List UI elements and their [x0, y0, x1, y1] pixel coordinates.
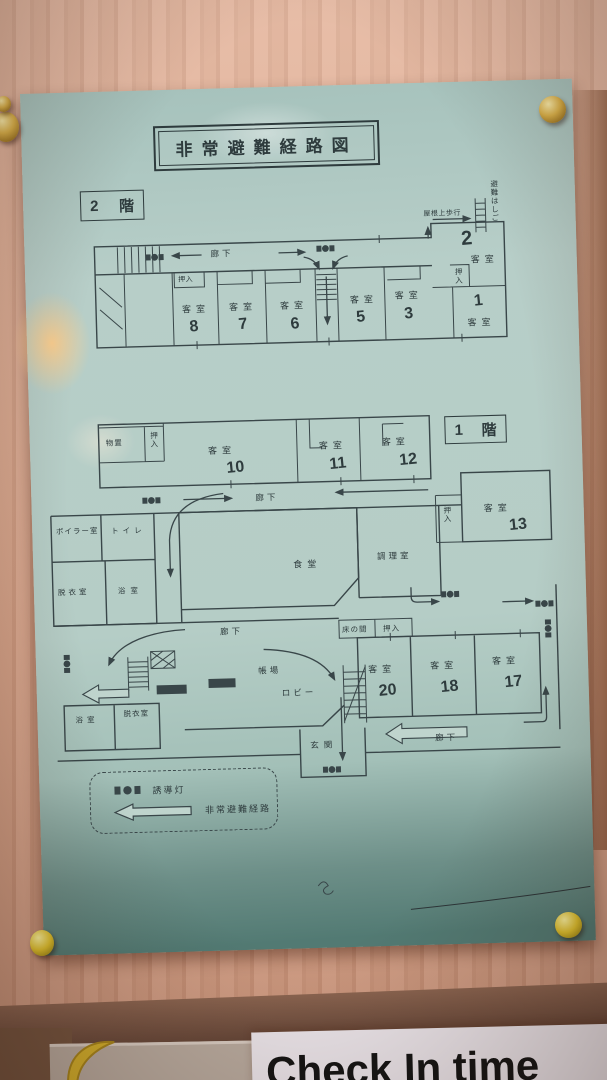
guest-room-label: 客室: [280, 298, 308, 312]
push-pin: [30, 930, 54, 956]
guest-room-label: 客室: [471, 252, 499, 266]
guest-room-label: 客室: [395, 288, 423, 302]
floor-suffix: 階: [481, 418, 497, 439]
room-number: 2: [460, 227, 473, 251]
yellow-leaf-object: [58, 1032, 137, 1080]
room-number: 20: [378, 681, 397, 701]
floor1-label: 1 階: [444, 415, 507, 445]
closet-label: 押入: [442, 506, 454, 530]
guest-room-label: 客室: [492, 653, 520, 667]
escape-ladder-icon: [475, 198, 486, 232]
kitchen-label: 調理室: [377, 549, 412, 562]
room-number: 3: [403, 305, 414, 324]
corridor-label: 廊下: [210, 247, 233, 260]
front-desk-marks: [156, 678, 235, 694]
guidance-light-icon: [323, 766, 341, 773]
guidance-light-icon: [63, 655, 70, 673]
guidance-light-icon: [146, 254, 164, 261]
guidance-light-icon: [441, 591, 459, 598]
handwritten-marks: [318, 874, 591, 912]
closet-label: 押入: [148, 431, 160, 453]
corridor-label: 廊下: [435, 731, 458, 744]
closet-label: 押入: [383, 623, 400, 634]
guidance-light-icon: [316, 245, 334, 252]
legend-route-row: 非常避難経路: [113, 799, 277, 822]
guidance-light-icon: [112, 784, 142, 797]
room-number: 6: [290, 315, 301, 334]
photo-frame: Check In time: [0, 0, 607, 1080]
alcove-label: 床の間: [342, 624, 368, 636]
room-number: 10: [226, 458, 245, 478]
floor2-walls: [94, 222, 507, 352]
corridor-label: 廊下: [255, 491, 278, 504]
guest-room-label: 客室: [368, 662, 396, 676]
legend-route-label: 非常避難経路: [205, 801, 271, 816]
guest-room-label: 客室: [182, 302, 210, 316]
guest-room-label: 客室: [319, 438, 347, 452]
floor2-number: 2: [90, 197, 99, 214]
room-number: 1: [473, 292, 484, 311]
room-number: 7: [238, 315, 249, 334]
floor1-walls: [48, 412, 561, 784]
guest-room-label: 客室: [350, 292, 378, 306]
guest-room-label: 客室: [484, 500, 512, 514]
changing-room-label: 脱衣室: [58, 586, 90, 598]
room-number: 8: [189, 318, 200, 337]
closet-label: 押入: [178, 274, 193, 284]
guest-room-label: 客室: [467, 315, 495, 329]
room-number: 11: [329, 454, 348, 474]
guest-room-label: 客室: [430, 658, 458, 672]
legend-box: 誘導灯 非常避難経路: [89, 767, 279, 834]
boiler-room-label: ボイラー室: [54, 526, 100, 537]
closet-label: 押入: [453, 268, 465, 288]
guidance-light-icon: [142, 497, 160, 504]
map-title-box: 非常避難経路図: [153, 120, 380, 171]
push-pin: [555, 912, 582, 938]
floor2-label: 2 階: [80, 190, 145, 222]
entrance-label: 玄関: [310, 738, 337, 751]
guidance-light-icon: [535, 600, 553, 607]
legend-guidance-light-label: 誘導灯: [152, 782, 185, 796]
bath-label: 浴室: [75, 714, 98, 726]
evacuation-route-arrow-icon: [113, 801, 195, 821]
guest-room-label: 客室: [229, 299, 257, 313]
floor-suffix: 階: [119, 194, 135, 215]
evacuation-map-paper: 非常避難経路図 2 階 1 階 屋根上歩行 避難はしご 廊下 押入 客室 8 客…: [20, 79, 596, 956]
guest-room-label: 客室: [208, 443, 236, 457]
changing-room-label: 脱衣室: [122, 709, 150, 719]
room-number: 13: [508, 515, 527, 535]
corridor-label: 廊下: [220, 625, 243, 638]
storage-label: 物置: [106, 437, 123, 448]
room-number: 12: [399, 450, 418, 470]
room-number: 17: [504, 673, 523, 693]
dining-room-label: 食堂: [293, 557, 321, 571]
checkin-sign-text: Check In time: [266, 1042, 540, 1080]
bath-label: 浴室: [118, 585, 143, 597]
legend-guidance-light-row: 誘導灯: [112, 780, 276, 798]
map-title: 非常避難経路図: [158, 125, 375, 166]
guest-room-label: 客室: [382, 434, 410, 448]
floor1-number: 1: [454, 421, 463, 438]
checkin-sign: Check In time: [251, 1023, 607, 1080]
floor1-evacuation-arrows: [77, 485, 547, 767]
guidance-light-icon: [544, 619, 551, 637]
roof-walk-label: 屋根上歩行: [423, 208, 461, 219]
lobby-label: ロビー: [282, 686, 317, 699]
room-number: 5: [356, 308, 367, 327]
room-number: 18: [440, 677, 459, 697]
toilet-label: トイレ: [111, 525, 146, 537]
push-pin: [539, 96, 566, 123]
front-desk-label: 帳場: [258, 664, 281, 677]
escape-ladder-label: 避難はしご: [489, 180, 501, 232]
